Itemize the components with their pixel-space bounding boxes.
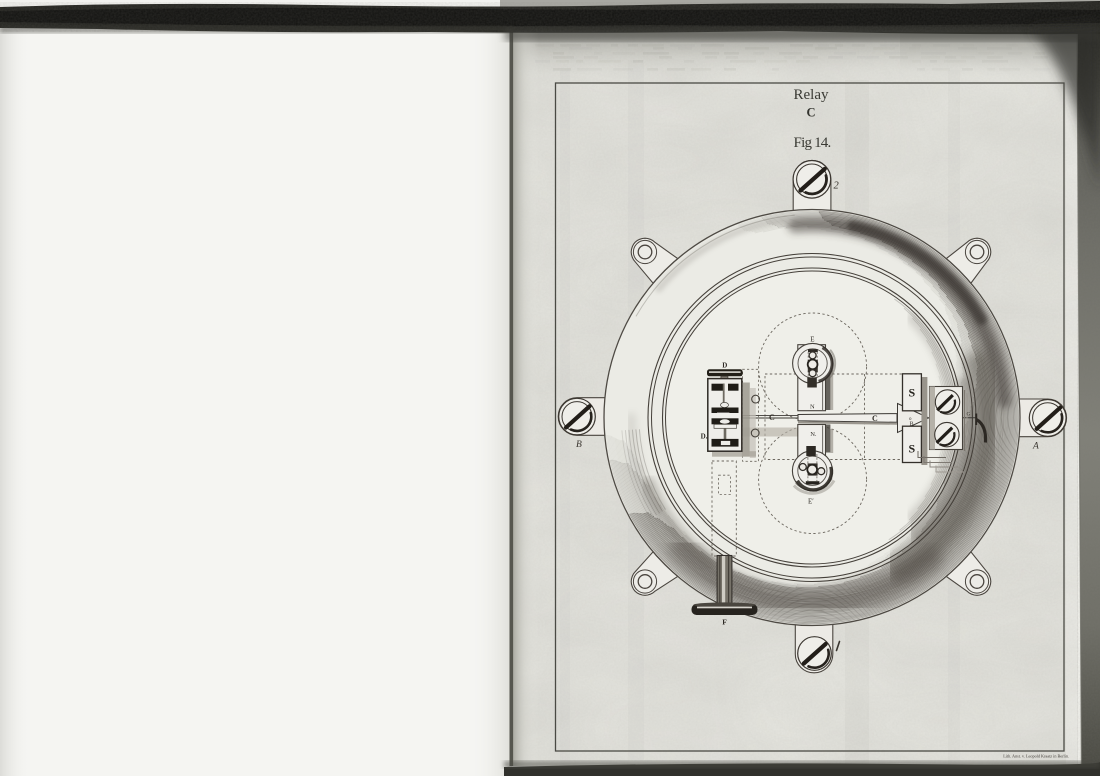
svg-text:2: 2 bbox=[834, 181, 840, 192]
svg-text:Fig 14.: Fig 14. bbox=[794, 135, 831, 151]
svg-text:N.: N. bbox=[810, 431, 817, 438]
svg-text:E′: E′ bbox=[808, 498, 814, 506]
svg-text:S: S bbox=[908, 442, 915, 456]
svg-text:Relay: Relay bbox=[794, 87, 829, 103]
svg-text:B: B bbox=[576, 440, 582, 450]
svg-text:C: C bbox=[806, 106, 815, 120]
svg-text:D.: D. bbox=[701, 433, 708, 441]
svg-text:S: S bbox=[908, 386, 915, 400]
svg-text:E: E bbox=[810, 336, 814, 344]
svg-text:F: F bbox=[722, 618, 727, 627]
svg-text:Lith. Anst. v. Leopold Kraatz: Lith. Anst. v. Leopold Kraatz in Berlin. bbox=[1003, 754, 1069, 759]
svg-text:A: A bbox=[1032, 442, 1039, 452]
svg-text:C: C bbox=[769, 413, 775, 422]
svg-text:G: G bbox=[967, 412, 971, 418]
svg-text:D: D bbox=[722, 362, 727, 370]
svg-text:N: N bbox=[810, 404, 815, 411]
svg-text:C: C bbox=[872, 414, 878, 423]
